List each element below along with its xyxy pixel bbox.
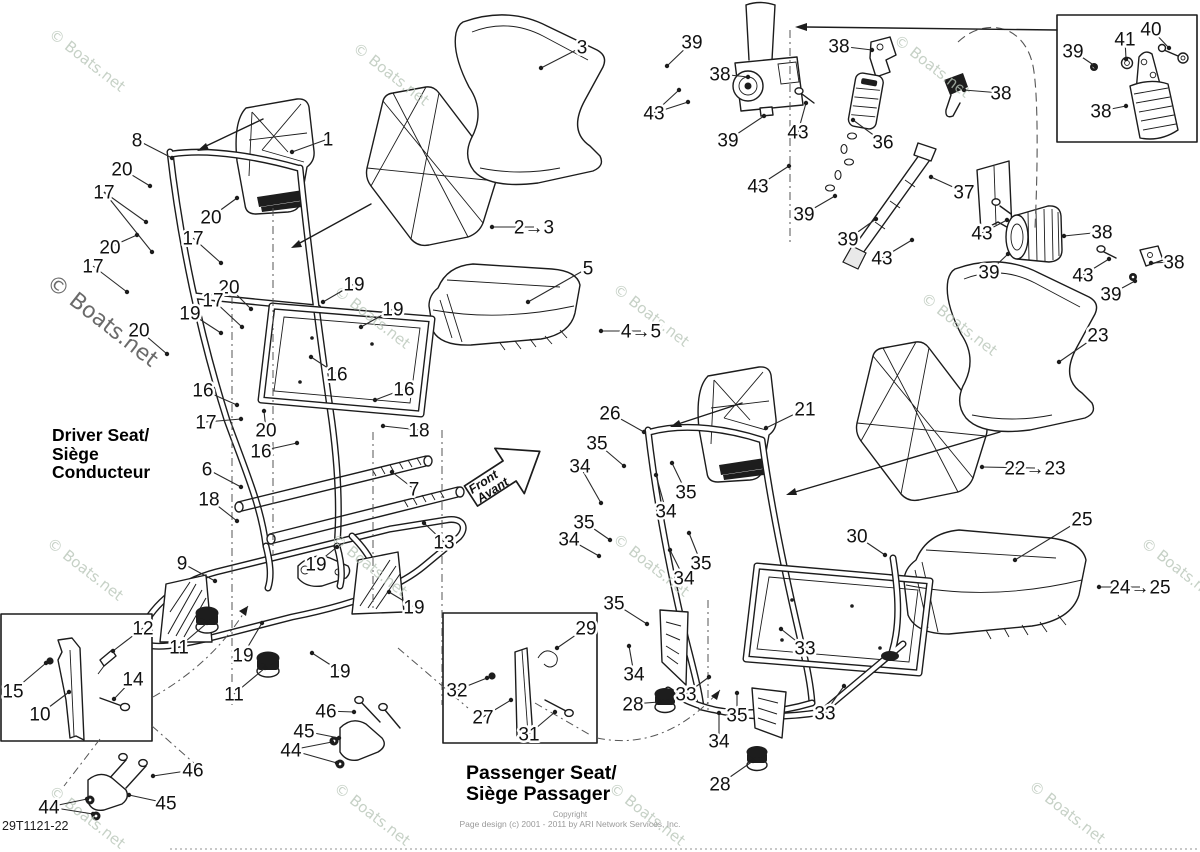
watermark: © Boats.net bbox=[46, 25, 129, 96]
passenger-seat-label: Passenger Seat/ Siège Passager bbox=[466, 763, 617, 804]
leader-dot bbox=[1124, 57, 1128, 61]
leader-dot bbox=[235, 403, 239, 407]
callout-13: 13 bbox=[433, 533, 454, 554]
callout-18: 18 bbox=[408, 421, 429, 442]
callout-35: 35 bbox=[675, 483, 696, 504]
leader-dot bbox=[1005, 218, 1009, 222]
callout-32: 32 bbox=[446, 681, 467, 702]
callout-19: 19 bbox=[403, 598, 424, 619]
callout-27: 27 bbox=[472, 708, 493, 729]
leader-dot bbox=[112, 697, 116, 701]
leader-dot bbox=[870, 48, 874, 52]
leader-dot bbox=[735, 691, 739, 695]
leader-dot bbox=[553, 710, 557, 714]
callout-20: 20 bbox=[255, 421, 276, 442]
callout-16: 16 bbox=[192, 381, 213, 402]
callout-34: 34 bbox=[708, 732, 730, 753]
callout-22→23: 22→23 bbox=[1004, 459, 1065, 480]
callout-34: 34 bbox=[655, 502, 677, 523]
callout-39: 39 bbox=[717, 131, 738, 152]
leader-dot bbox=[555, 646, 559, 650]
leader-dot bbox=[1013, 558, 1017, 562]
callout-28: 28 bbox=[709, 775, 730, 796]
leader-dot bbox=[670, 461, 674, 465]
leader-dot bbox=[687, 531, 691, 535]
leader-dot bbox=[929, 175, 933, 179]
callout-19: 19 bbox=[305, 555, 326, 576]
leader-dot bbox=[910, 238, 914, 242]
leader-dot bbox=[657, 700, 661, 704]
callout-8: 8 bbox=[132, 131, 143, 152]
leader-dot bbox=[883, 553, 887, 557]
leader-dot bbox=[125, 290, 129, 294]
callout-20: 20 bbox=[99, 238, 120, 259]
leader-dot bbox=[422, 521, 426, 525]
callout-16: 16 bbox=[326, 365, 347, 386]
leader-dot bbox=[239, 417, 243, 421]
leader-dot bbox=[526, 300, 530, 304]
leader-dot bbox=[387, 590, 391, 594]
callout-15: 15 bbox=[2, 682, 23, 703]
callout-39: 39 bbox=[1100, 285, 1121, 306]
callout-2→3: 2→3 bbox=[514, 218, 554, 239]
leader-dot bbox=[1062, 234, 1066, 238]
watermark: © Boats.net bbox=[350, 39, 433, 110]
leader-dot bbox=[239, 485, 243, 489]
leader-dot bbox=[833, 194, 837, 198]
leader-dot bbox=[219, 261, 223, 265]
callout-9: 9 bbox=[177, 554, 188, 575]
callout-10: 10 bbox=[29, 705, 50, 726]
leader-dot bbox=[390, 470, 394, 474]
leader-dot bbox=[707, 675, 711, 679]
leader-dot bbox=[654, 473, 658, 477]
leader-dot bbox=[67, 690, 71, 694]
leader-dot bbox=[746, 75, 750, 79]
callout-39: 39 bbox=[681, 33, 702, 54]
callout-38: 38 bbox=[990, 84, 1011, 105]
leader-dot bbox=[240, 325, 244, 329]
callout-34: 34 bbox=[569, 457, 591, 478]
watermark: © Boats.net bbox=[328, 530, 411, 601]
callout-43: 43 bbox=[747, 177, 768, 198]
driver-seat-label-line3: Conducteur bbox=[52, 463, 150, 482]
leader-dot bbox=[1006, 252, 1010, 256]
leader-dot bbox=[260, 621, 264, 625]
leader-dot bbox=[851, 118, 855, 122]
callout-43: 43 bbox=[643, 104, 664, 125]
callout-43: 43 bbox=[1072, 266, 1093, 287]
callout-7: 7 bbox=[409, 480, 420, 501]
leader-dot bbox=[642, 430, 646, 434]
leader-dot bbox=[309, 355, 313, 359]
leader-dot bbox=[962, 88, 966, 92]
callout-40: 40 bbox=[1140, 20, 1161, 41]
callout-overlay: © Boats.net© Boats.net© Boats.net© Boats… bbox=[0, 0, 1200, 852]
callout-17: 17 bbox=[202, 291, 223, 312]
callout-33: 33 bbox=[675, 685, 696, 706]
leader-dot bbox=[787, 164, 791, 168]
callout-29: 29 bbox=[575, 619, 596, 640]
parts-diagram-canvas: Front Avant bbox=[0, 0, 1200, 852]
leader-dot bbox=[1124, 104, 1128, 108]
callout-21: 21 bbox=[794, 400, 815, 421]
callout-39: 39 bbox=[978, 263, 999, 284]
callout-43: 43 bbox=[971, 224, 992, 245]
leader-dot bbox=[310, 651, 314, 655]
copyright-line2: Page design (c) 2001 - 2011 by ARI Netwo… bbox=[420, 819, 720, 829]
leader-dot bbox=[980, 465, 984, 469]
leader-dot bbox=[1133, 279, 1137, 283]
callout-35: 35 bbox=[603, 594, 624, 615]
callout-36: 36 bbox=[872, 133, 893, 154]
driver-seat-label-line2: Siège bbox=[52, 445, 150, 464]
callout-39: 39 bbox=[1062, 42, 1083, 63]
leader-dot bbox=[290, 150, 294, 154]
callout-46: 46 bbox=[182, 761, 203, 782]
callout-11: 11 bbox=[169, 638, 189, 659]
watermark: © Boats.net bbox=[1026, 777, 1109, 848]
leader-dot bbox=[599, 501, 603, 505]
leader-dot bbox=[111, 649, 115, 653]
leader-dot bbox=[235, 519, 239, 523]
watermark: © Boats.net bbox=[44, 534, 127, 605]
callout-35: 35 bbox=[726, 706, 747, 727]
leader-dot bbox=[337, 736, 341, 740]
leader-dot bbox=[764, 426, 768, 430]
callout-38: 38 bbox=[709, 65, 730, 86]
callout-39: 39 bbox=[837, 230, 858, 251]
callout-19: 19 bbox=[343, 275, 364, 296]
watermark: © Boats.net bbox=[891, 31, 974, 102]
leader-dot bbox=[249, 307, 253, 311]
leader-dot bbox=[352, 710, 356, 714]
leader-dot bbox=[1107, 257, 1111, 261]
leader-dot bbox=[874, 217, 878, 221]
leader-dot bbox=[717, 711, 721, 715]
callout-44: 44 bbox=[38, 798, 60, 819]
callout-17: 17 bbox=[82, 257, 103, 278]
callout-19: 19 bbox=[382, 300, 403, 321]
callout-19: 19 bbox=[179, 304, 200, 325]
callout-17: 17 bbox=[195, 413, 216, 434]
callout-16: 16 bbox=[250, 442, 271, 463]
leader-dot bbox=[599, 329, 603, 333]
leader-dot bbox=[804, 101, 808, 105]
callout-20: 20 bbox=[111, 160, 132, 181]
leader-dot bbox=[509, 698, 513, 702]
callout-4→5: 4→5 bbox=[621, 322, 661, 343]
leader-dot bbox=[263, 666, 267, 670]
callout-38: 38 bbox=[1091, 223, 1112, 244]
leader-dot bbox=[779, 627, 783, 631]
leader-dot bbox=[622, 464, 626, 468]
callout-17: 17 bbox=[182, 229, 203, 250]
leader-dot bbox=[262, 409, 266, 413]
callout-20: 20 bbox=[128, 321, 149, 342]
callout-39: 39 bbox=[793, 205, 814, 226]
callout-34: 34 bbox=[558, 530, 580, 551]
callout-1: 1 bbox=[323, 130, 334, 151]
leader-dot bbox=[151, 774, 155, 778]
leader-dot bbox=[359, 325, 363, 329]
callout-5: 5 bbox=[583, 259, 594, 280]
leader-dot bbox=[213, 579, 217, 583]
leader-dot bbox=[150, 250, 154, 254]
callout-45: 45 bbox=[155, 794, 176, 815]
leader-dot bbox=[751, 759, 755, 763]
callout-17: 17 bbox=[93, 183, 114, 204]
callout-43: 43 bbox=[787, 123, 808, 144]
callout-26: 26 bbox=[599, 404, 620, 425]
leader-dot bbox=[1057, 360, 1061, 364]
diagram-id: 29T1121-22 bbox=[2, 819, 69, 833]
callout-28: 28 bbox=[622, 695, 643, 716]
callout-24→25: 24→25 bbox=[1109, 578, 1170, 599]
callout-18: 18 bbox=[198, 490, 219, 511]
callout-45: 45 bbox=[293, 722, 314, 743]
watermark: © Boats.net bbox=[331, 779, 414, 850]
leader-dot bbox=[144, 220, 148, 224]
callout-12: 12 bbox=[132, 619, 153, 640]
callout-19: 19 bbox=[232, 646, 253, 667]
leader-dot bbox=[762, 114, 766, 118]
leader-dot bbox=[665, 64, 669, 68]
leader-dot bbox=[205, 621, 209, 625]
callout-3: 3 bbox=[577, 38, 588, 59]
leader-dot bbox=[1149, 261, 1153, 265]
leader-dot bbox=[127, 793, 131, 797]
leader-dot bbox=[170, 156, 174, 160]
leader-dot bbox=[335, 545, 339, 549]
callout-30: 30 bbox=[846, 527, 867, 548]
callout-20: 20 bbox=[200, 208, 221, 229]
callout-14: 14 bbox=[122, 670, 144, 691]
callout-37: 37 bbox=[953, 183, 974, 204]
leader-dot bbox=[85, 797, 89, 801]
leader-dot bbox=[91, 812, 95, 816]
callout-34: 34 bbox=[623, 665, 645, 686]
leader-line bbox=[528, 268, 588, 302]
leader-dot bbox=[1167, 46, 1171, 50]
callout-19: 19 bbox=[329, 662, 350, 683]
leader-dot bbox=[235, 196, 239, 200]
leader-dot bbox=[381, 424, 385, 428]
callout-23: 23 bbox=[1087, 326, 1108, 347]
callout-34: 34 bbox=[673, 569, 695, 590]
leader-dot bbox=[219, 331, 223, 335]
callout-31: 31 bbox=[518, 725, 539, 746]
leader-dot bbox=[1097, 585, 1101, 589]
leader-dot bbox=[842, 684, 846, 688]
callout-41: 41 bbox=[1114, 30, 1135, 51]
leader-dot bbox=[608, 538, 612, 542]
callout-33: 33 bbox=[814, 704, 835, 725]
callout-33: 33 bbox=[794, 639, 815, 660]
copyright-notice: Copyright Page design (c) 2001 - 2011 by… bbox=[420, 810, 720, 829]
callout-6: 6 bbox=[202, 460, 213, 481]
callout-16: 16 bbox=[393, 380, 414, 401]
passenger-seat-label-line2: Siège Passager bbox=[466, 784, 617, 805]
leader-dot bbox=[490, 225, 494, 229]
callout-43: 43 bbox=[871, 249, 892, 270]
leader-dot bbox=[335, 761, 339, 765]
leader-dot bbox=[686, 100, 690, 104]
callout-46: 46 bbox=[315, 702, 336, 723]
leader-dot bbox=[44, 661, 48, 665]
leader-dot bbox=[668, 548, 672, 552]
leader-dot bbox=[627, 644, 631, 648]
watermark: © Boats.net bbox=[610, 530, 693, 601]
leader-dot bbox=[597, 554, 601, 558]
callout-35: 35 bbox=[586, 434, 607, 455]
leader-dot bbox=[1093, 64, 1097, 68]
leader-dot bbox=[148, 184, 152, 188]
leader-dot bbox=[321, 300, 325, 304]
leader-dot bbox=[330, 740, 334, 744]
copyright-line1: Copyright bbox=[420, 810, 720, 819]
callout-38: 38 bbox=[1090, 102, 1111, 123]
leader-dot bbox=[373, 398, 377, 402]
leader-dot bbox=[645, 622, 649, 626]
leader-dot bbox=[485, 676, 489, 680]
passenger-seat-label-line1: Passenger Seat/ bbox=[466, 763, 617, 784]
leader-dot bbox=[135, 233, 139, 237]
callout-38: 38 bbox=[828, 37, 849, 58]
callout-38: 38 bbox=[1163, 253, 1184, 274]
leader-dot bbox=[165, 352, 169, 356]
driver-seat-label-line1: Driver Seat/ bbox=[52, 426, 150, 445]
leader-dot bbox=[677, 88, 681, 92]
leader-dot bbox=[295, 441, 299, 445]
callout-25: 25 bbox=[1071, 510, 1092, 531]
callout-44: 44 bbox=[280, 741, 302, 762]
watermark: © Boats.net bbox=[918, 289, 1001, 360]
callout-11: 11 bbox=[224, 685, 244, 706]
driver-seat-label: Driver Seat/ Siège Conducteur bbox=[52, 426, 150, 482]
leader-dot bbox=[539, 66, 543, 70]
